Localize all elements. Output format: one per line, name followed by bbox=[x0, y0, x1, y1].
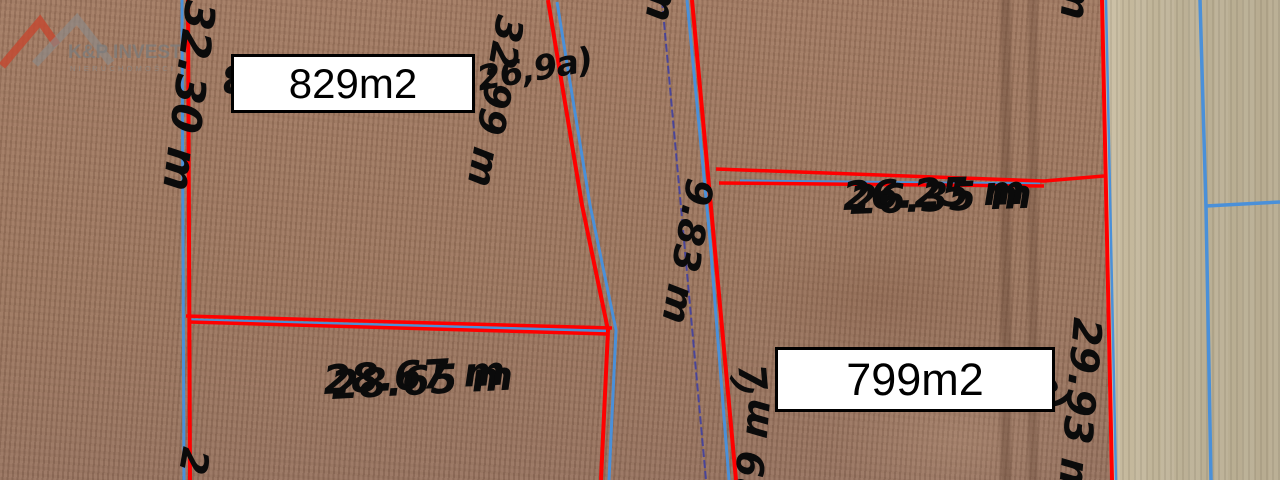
watermark-logo: K&P INVEST NIERUCHOMOŚCI bbox=[0, 6, 192, 78]
area-label-829-text: 829m2 bbox=[289, 60, 417, 108]
area-label-799: 799m2 bbox=[775, 347, 1055, 412]
brand-subtitle: NIERUCHOMOŚCI bbox=[70, 64, 176, 73]
area-label-829: 829m2 bbox=[231, 54, 475, 113]
cadastral-aerial-map: K&P INVEST NIERUCHOMOŚCI 8 26,9a) 7 ) a)… bbox=[0, 0, 1280, 480]
watermark-logo-svg: K&P INVEST NIERUCHOMOŚCI bbox=[0, 6, 192, 78]
brand-text: K&P INVEST bbox=[68, 42, 182, 63]
measurement-799-north-a: 26.25 m bbox=[842, 168, 1026, 220]
measurement-799-west-partial: 39 m bbox=[726, 397, 779, 480]
measurement-829-south-a: 28.67 m bbox=[322, 348, 506, 403]
area-label-799-text: 799m2 bbox=[846, 354, 984, 406]
